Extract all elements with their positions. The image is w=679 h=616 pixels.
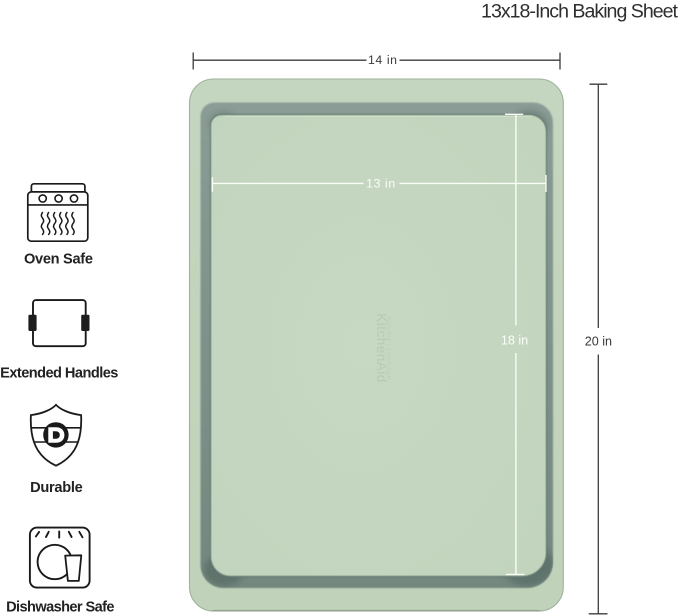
svg-text:20 in: 20 in [585,334,612,348]
svg-text:Extended Handles: Extended Handles [0,366,118,382]
svg-text:13 in: 13 in [366,177,396,191]
svg-text:Oven Safe: Oven Safe [24,252,93,268]
svg-text:Dishwasher Safe: Dishwasher Safe [6,600,114,616]
svg-text:13x18-Inch Baking Sheet: 13x18-Inch Baking Sheet [481,1,679,23]
svg-text:18 in: 18 in [501,334,528,348]
svg-text:Durable: Durable [30,480,82,496]
svg-text:14 in: 14 in [368,53,398,67]
svg-text:Nonstick | 13x18 inch: Nonstick | 13x18 inch [385,316,391,379]
